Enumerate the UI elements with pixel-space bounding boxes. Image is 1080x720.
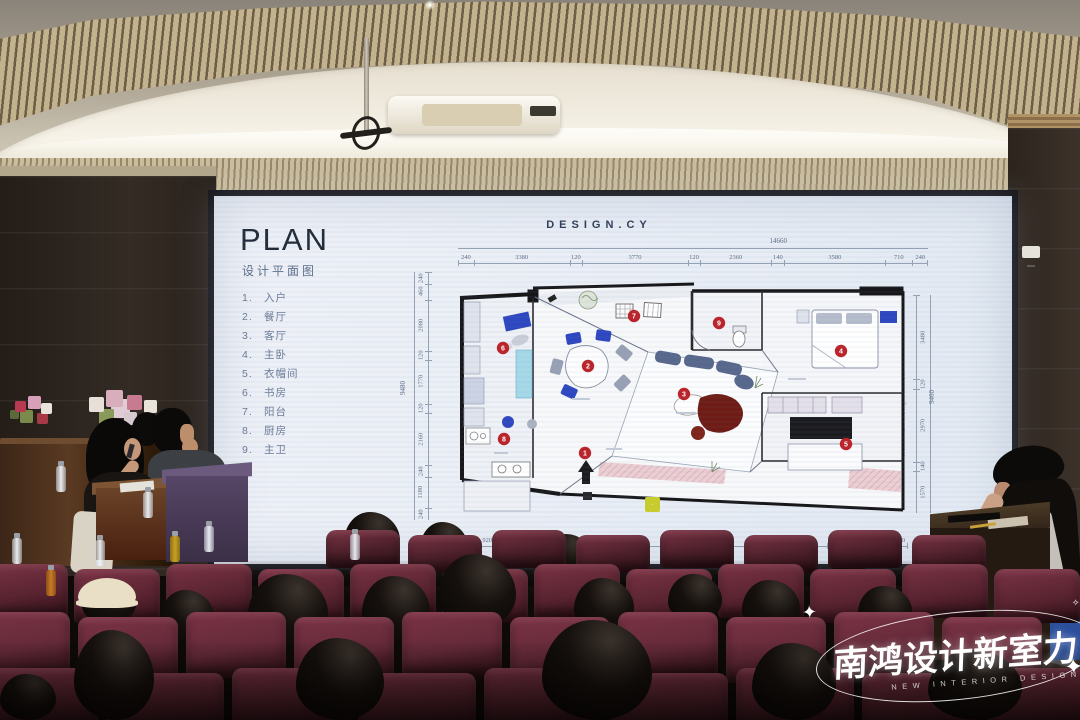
sparkle-icon: ✦ (1063, 653, 1080, 680)
sparkle-icon: ✦ (801, 602, 818, 624)
water-bottle (204, 526, 214, 552)
water-bottle (350, 534, 360, 560)
water-bottle (143, 492, 153, 518)
audience-head (0, 674, 56, 720)
auditorium-seat (492, 530, 566, 568)
orange-drink-bottle (46, 570, 56, 596)
sparkle-icon: ✧ (1072, 597, 1080, 608)
auditorium-seat (0, 564, 68, 618)
brand-watermark: 南鸿设计新室力 NEW INTERIOR DESIGN ✦ ✦ ✧ (829, 607, 1080, 720)
water-bottle (95, 540, 105, 566)
auditorium-seat (402, 612, 502, 678)
yellow-drink-bottle (170, 536, 180, 562)
cream-cap-brim (76, 598, 138, 608)
audience (0, 0, 1080, 720)
yellow-ball (652, 504, 653, 505)
water-bottle (56, 466, 66, 492)
water-bottle (12, 538, 22, 564)
auditorium-seat (828, 530, 902, 568)
auditorium-seat (660, 530, 734, 568)
auditorium-seat (326, 530, 400, 568)
lecture-hall-photo: PLAN 设计平面图 1.入户2.餐厅3.客厅4.主卧5.衣帽间6.书房7.阳台… (0, 0, 1080, 720)
